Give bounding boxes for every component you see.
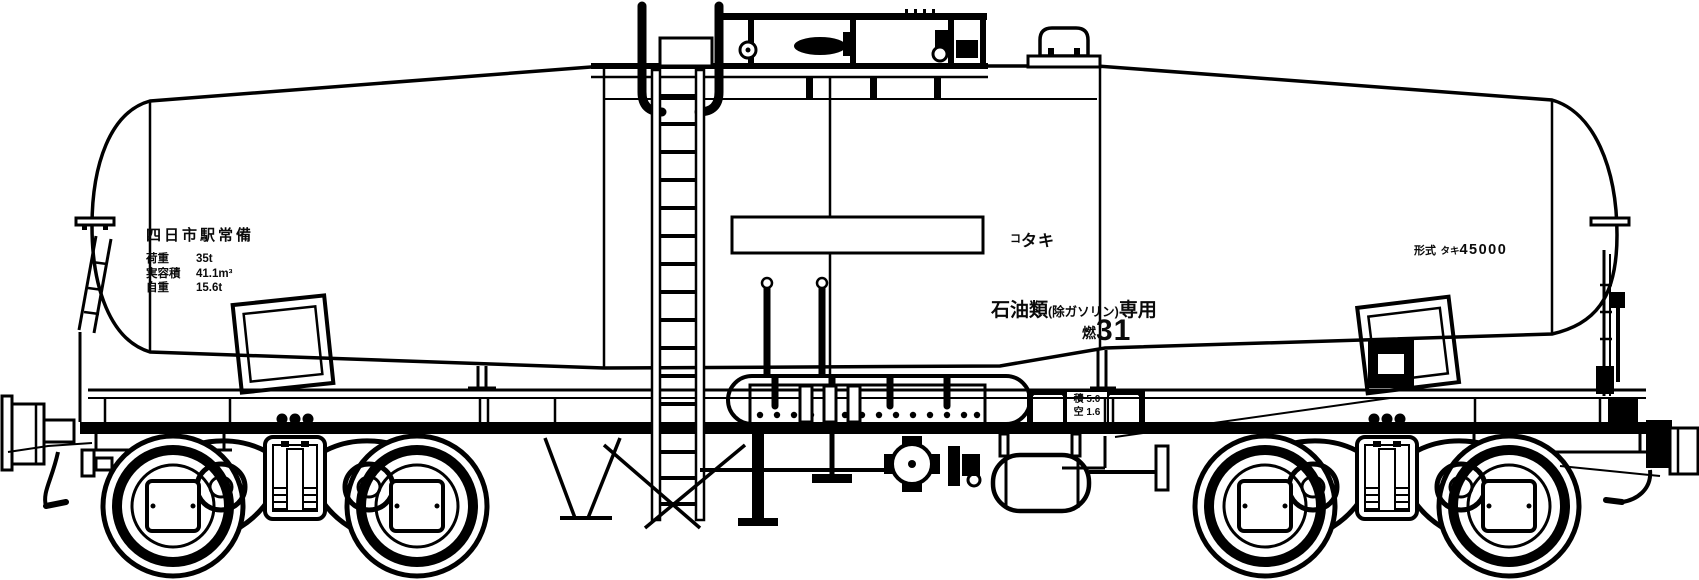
end-grab-handle-right (1591, 218, 1629, 225)
tare-spec: 自重 15.6t (146, 281, 232, 296)
manhole-hatch (660, 38, 712, 66)
tank-wagon-drawing: 四日市駅常備 荷重 35t 実容積 41.1m³ 自重 15.6t コタキ 石油… (0, 0, 1699, 580)
railing-ticks (905, 9, 908, 18)
drop-pipe (752, 424, 764, 522)
side-sill (80, 422, 1652, 434)
type-number-label: 形式 タキ45000 (1414, 241, 1507, 259)
safety-valve (1028, 28, 1100, 67)
coupler-shank-left (44, 420, 74, 442)
tank-body (92, 66, 1617, 374)
fuel-class-label: 燃31 (1082, 314, 1131, 348)
brake-hose-left (45, 452, 58, 506)
coupler-head-right (1670, 428, 1698, 474)
placard-empty-line: 空 1.6 (1066, 406, 1108, 419)
reporting-mark: コタキ (1010, 227, 1055, 251)
air-reservoir (993, 434, 1089, 511)
cargo-use-label: 石油類(除ガソリン)専用 (991, 295, 1157, 322)
right-bogie (1195, 414, 1579, 577)
left-bogie (103, 414, 487, 577)
railing-top-rail (719, 13, 987, 20)
load-spec: 荷重 35t (146, 252, 232, 267)
end-grab-handle (76, 218, 114, 225)
coupler-left (2, 396, 112, 506)
walkway-deck (591, 63, 988, 69)
support-braces (545, 438, 745, 528)
placard-loaded-line: 積 5.0 (1066, 393, 1108, 406)
hanger-brackets (800, 386, 860, 422)
capacity-spec: 実容積 41.1m³ (146, 267, 232, 282)
spec-table: 荷重 35t 実容積 41.1m³ 自重 15.6t (146, 252, 232, 296)
load-placard: 積 5.0 空 1.6 (1066, 393, 1108, 419)
station-assignment-label: 四日市駅常備 (146, 224, 254, 245)
coupler-head-left (12, 404, 44, 464)
triple-valve (884, 436, 940, 492)
uncoupling-lever-right (1560, 466, 1660, 476)
tank-label-panel (732, 217, 983, 253)
valve-gear (740, 30, 978, 61)
line-art (0, 0, 1699, 580)
